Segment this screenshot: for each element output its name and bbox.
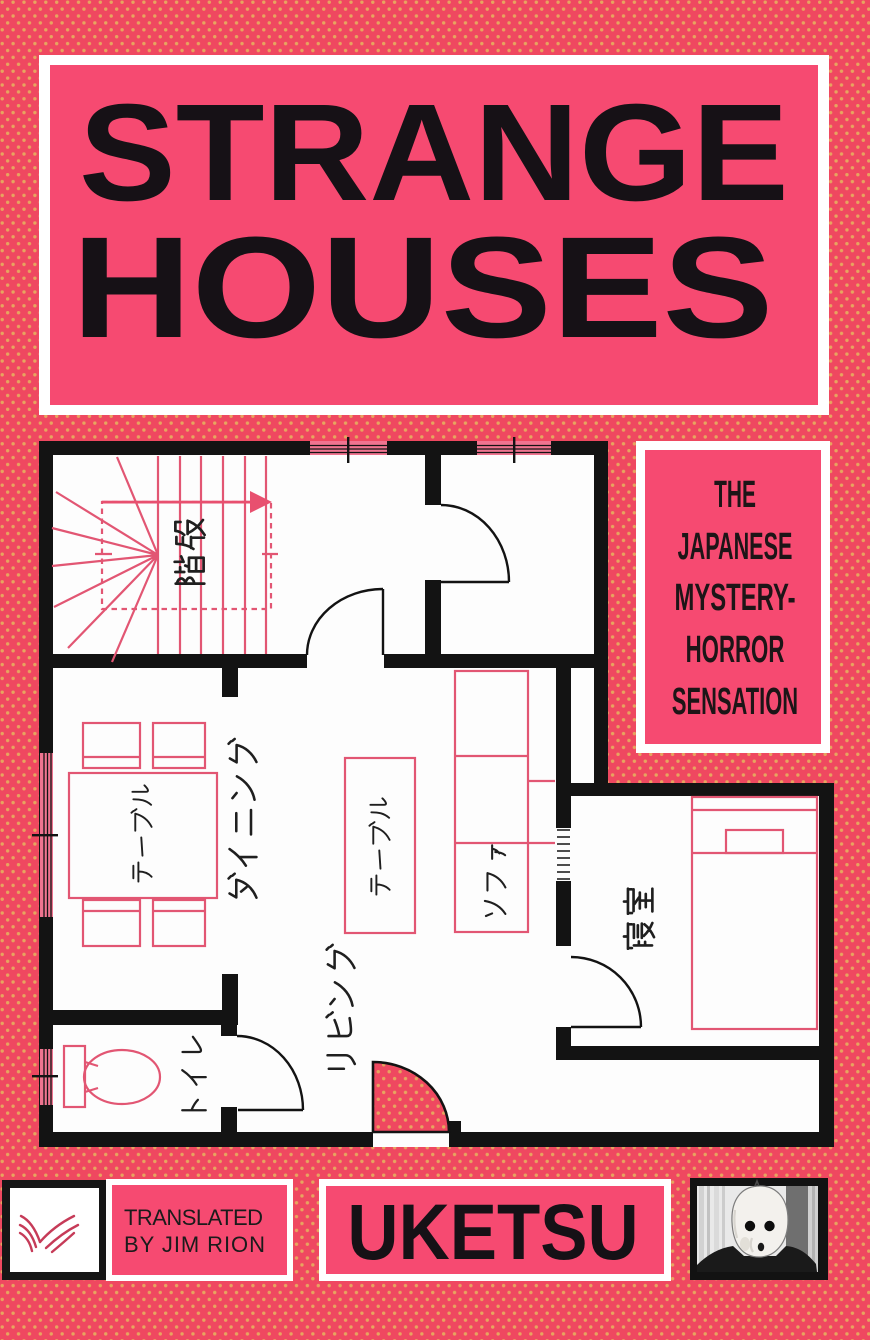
svg-text:JAPANESE: JAPANESE — [678, 525, 793, 568]
svg-text:HOUSES: HOUSES — [72, 206, 774, 367]
svg-text:BY JIM RION: BY JIM RION — [124, 1232, 265, 1257]
svg-text:HORROR: HORROR — [686, 628, 785, 671]
svg-text:THE: THE — [714, 474, 756, 516]
svg-text:MYSTERY-: MYSTERY- — [674, 575, 795, 618]
svg-text:UKETSU: UKETSU — [347, 1187, 638, 1275]
svg-text:TRANSLATED: TRANSLATED — [124, 1205, 263, 1230]
svg-text:SENSATION: SENSATION — [672, 680, 798, 723]
